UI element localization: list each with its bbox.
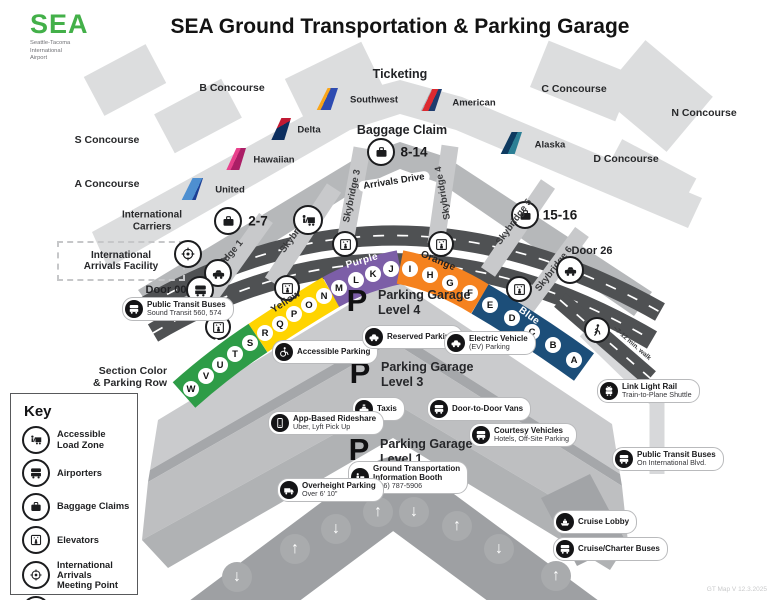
- sea-logo: SEA Seattle-Tacoma International Airport: [30, 11, 89, 63]
- row-letter-m: M: [331, 280, 347, 296]
- map-key: Key AccessibleLoad Zone Airporters Bagga…: [10, 393, 138, 595]
- callout-courtesy-vehicles: Courtesy VehiclesHotels, Off-Site Parkin…: [469, 423, 577, 447]
- international-arrivals-meeting-point-icon: [174, 240, 202, 268]
- bus-icon: [615, 450, 633, 468]
- callout-public-transit-east: Public Transit BusesOn International Blv…: [612, 447, 724, 471]
- wheelchair-icon: [275, 343, 293, 361]
- map-version: GT Map V 12.3.2025: [707, 586, 767, 593]
- ramp-arrow-down: ↓: [321, 514, 351, 544]
- callout-public-transit-west: Public Transit BusesSound Transit 560, 5…: [122, 297, 234, 321]
- rental-car-shuttle-icon: [22, 596, 50, 600]
- callout-cruise-charter-buses: Cruise/Charter Buses: [553, 537, 668, 561]
- row-letter-j: J: [383, 261, 399, 277]
- ship-icon: [556, 513, 574, 531]
- airline-label-united: United: [215, 185, 245, 196]
- airport-map: SEA Seattle-Tacoma International Airport…: [0, 0, 775, 600]
- section-color-heading: Section Color & Parking Row: [93, 365, 167, 389]
- row-letter-r: R: [257, 325, 273, 341]
- elevator-icon: [332, 231, 358, 257]
- train-icon: [600, 382, 618, 400]
- key-item-baggage-claims: Baggage Claims: [22, 493, 137, 521]
- label-ticketing: Ticketing: [373, 67, 428, 81]
- ramp-arrow-down: ↓: [399, 497, 429, 527]
- baggage-range-mid: 8-14: [400, 145, 427, 160]
- row-letter-w: W: [183, 381, 199, 397]
- row-letter-t: T: [227, 346, 243, 362]
- ev-car-icon: [447, 334, 465, 352]
- row-letter-e: E: [482, 297, 498, 313]
- accessible-load-zone-icon: [293, 205, 323, 235]
- phone-icon: [271, 414, 289, 432]
- key-item-accessible-load-zone: AccessibleLoad Zone: [22, 426, 137, 454]
- row-letter-u: U: [212, 357, 228, 373]
- row-letter-n: N: [316, 288, 332, 304]
- parking-p-level4: P: [347, 283, 368, 319]
- key-item-airporters: Airporters: [22, 459, 137, 487]
- international-arrivals-facility: International Arrivals Facility: [57, 241, 185, 281]
- baggage-range-right: 15-16: [543, 208, 578, 223]
- label-b-concourse: B Concourse: [199, 82, 264, 94]
- sea-logo-text: SEA: [30, 11, 89, 38]
- elevator-icon: [506, 276, 532, 302]
- key-item-elevators: Elevators: [22, 526, 137, 554]
- international-arrivals-meeting-point-icon: [22, 561, 50, 589]
- callout-accessible-parking: Accessible Parking: [272, 340, 378, 364]
- baggage-claims-icon: [214, 207, 242, 235]
- label-door-26: Door 26: [572, 245, 613, 257]
- row-letter-o: O: [301, 297, 317, 313]
- row-letter-b: B: [545, 337, 561, 353]
- label-s-concourse: S Concourse: [75, 134, 140, 146]
- callout-overheight-parking: Overheight ParkingOver 6' 10": [277, 478, 384, 502]
- airline-label-southwest: Southwest: [350, 95, 398, 106]
- bus-icon: [22, 459, 50, 487]
- baggage-range-left: 2-7: [248, 214, 268, 229]
- accessible-load-zone-icon: [22, 426, 50, 454]
- ramp-arrow-down: ↓: [222, 562, 252, 592]
- label-baggage-claim: Baggage Claim: [357, 123, 447, 137]
- ramp-arrow-up: ↑: [541, 561, 571, 591]
- key-item-international-arrivals-meeting-point: International ArrivalsMeeting Point: [22, 560, 137, 591]
- row-letter-v: V: [198, 368, 214, 384]
- label-door-00: Door 00: [146, 284, 187, 296]
- row-letter-q: Q: [272, 316, 288, 332]
- ramp-arrow-up: ↑: [280, 534, 310, 564]
- page-title: SEA Ground Transportation & Parking Gara…: [110, 15, 690, 39]
- airline-label-american: American: [452, 98, 495, 109]
- truck-icon: [280, 481, 298, 499]
- airline-label-hawaiian: Hawaiian: [253, 155, 294, 166]
- label-c-concourse: C Concourse: [541, 83, 606, 95]
- label-a-concourse: A Concourse: [75, 178, 140, 190]
- row-letter-s: S: [242, 335, 258, 351]
- baggage-claims-icon: [22, 493, 50, 521]
- sea-logo-sub: Seattle-Tacoma International Airport: [30, 40, 89, 63]
- parking-level4-label: Parking Garage Level 4: [378, 288, 470, 318]
- ramp-arrow-down: ↓: [484, 534, 514, 564]
- label-n-concourse: N Concourse: [671, 107, 736, 119]
- charter-bus-icon: [556, 540, 574, 558]
- row-letter-a: A: [566, 352, 582, 368]
- parking-level3-label: Parking Garage Level 3: [381, 360, 473, 390]
- baggage-claims-icon: [367, 138, 395, 166]
- car-icon: [365, 328, 383, 346]
- airline-label-alaska: Alaska: [535, 140, 566, 151]
- van-icon: [430, 400, 448, 418]
- row-letter-h: H: [422, 267, 438, 283]
- ramp-arrow-up: ↑: [442, 511, 472, 541]
- row-letter-d: D: [504, 310, 520, 326]
- callout-app-based-rideshare: App-Based RideshareUber, Lyft Pick Up: [268, 411, 384, 435]
- label-international-carriers: International Carriers: [122, 210, 182, 233]
- airline-label-delta: Delta: [297, 125, 320, 136]
- row-letter-p: P: [286, 306, 302, 322]
- bus-icon: [472, 426, 490, 444]
- callout-link-light-rail: Link Light RailTrain-to-Plane Shuttle: [597, 379, 700, 403]
- label-d-concourse: D Concourse: [593, 153, 658, 165]
- pedestrian-walk-icon: [584, 317, 610, 343]
- key-title: Key: [24, 403, 137, 420]
- elevator-icon: [22, 526, 50, 554]
- callout-cruise-lobby: Cruise Lobby: [553, 510, 637, 534]
- row-letter-i: I: [402, 261, 418, 277]
- rental-car-shuttle-icon: [556, 256, 584, 284]
- bus-icon: [125, 300, 143, 318]
- callout-door-to-door-vans: Door-to-Door Vans: [427, 397, 531, 421]
- callout-ev-parking: Electric Vehicle(EV) Parking: [444, 331, 536, 355]
- key-item-rental-car-shuttle: Rental CarShuttle: [22, 596, 137, 600]
- row-letter-k: K: [365, 266, 381, 282]
